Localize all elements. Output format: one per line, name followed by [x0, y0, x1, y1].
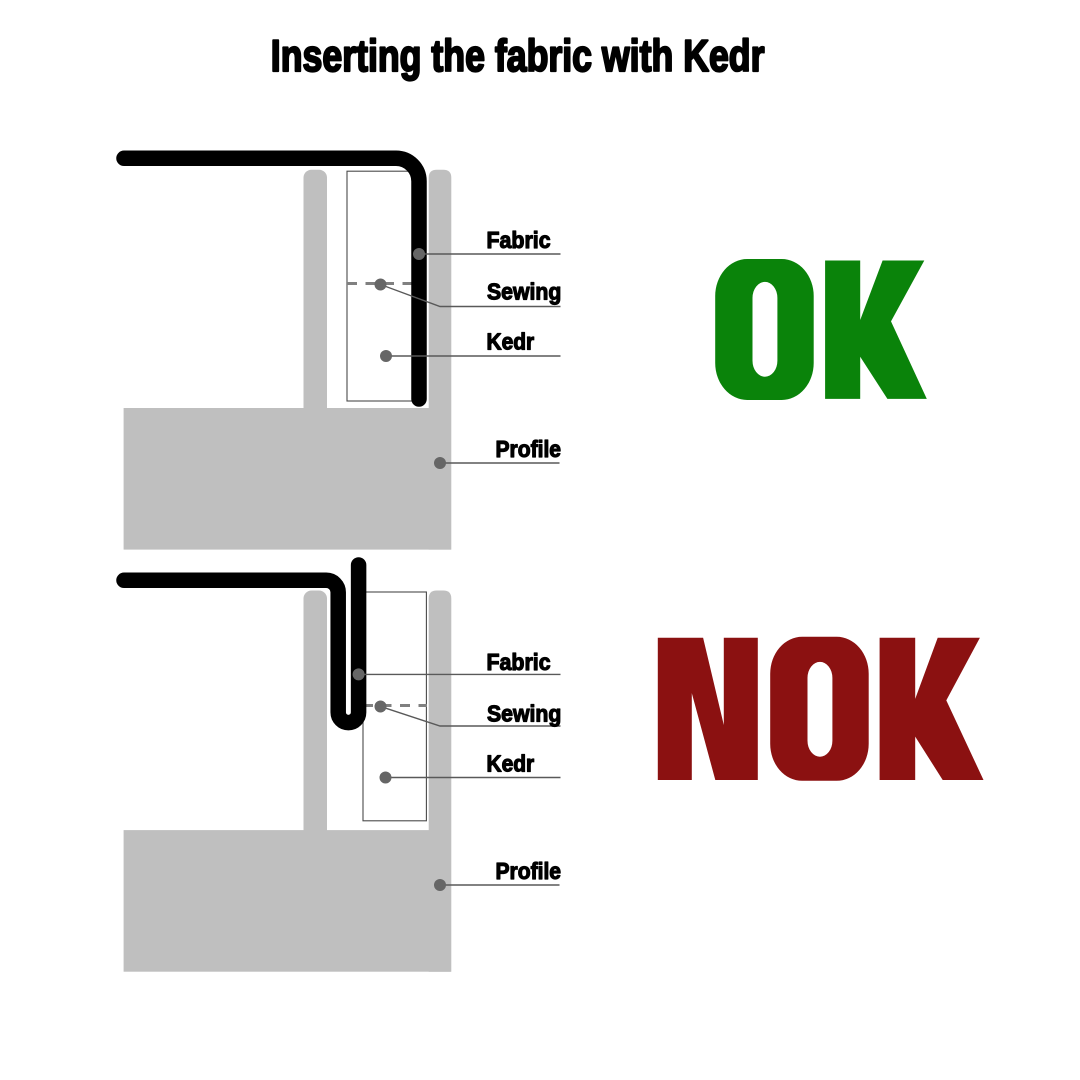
- svg-text:Fabric: Fabric: [487, 227, 551, 253]
- svg-text:Profile: Profile: [496, 858, 562, 884]
- svg-text:Inserting the fabric with Kedr: Inserting the fabric with Kedr: [271, 30, 765, 81]
- svg-text:Profile: Profile: [496, 436, 562, 462]
- svg-text:Sewing: Sewing: [487, 701, 561, 727]
- svg-text:Fabric: Fabric: [487, 649, 551, 675]
- svg-text:Kedr: Kedr: [487, 329, 535, 355]
- svg-text:Sewing: Sewing: [487, 279, 561, 305]
- svg-text:Kedr: Kedr: [487, 751, 535, 777]
